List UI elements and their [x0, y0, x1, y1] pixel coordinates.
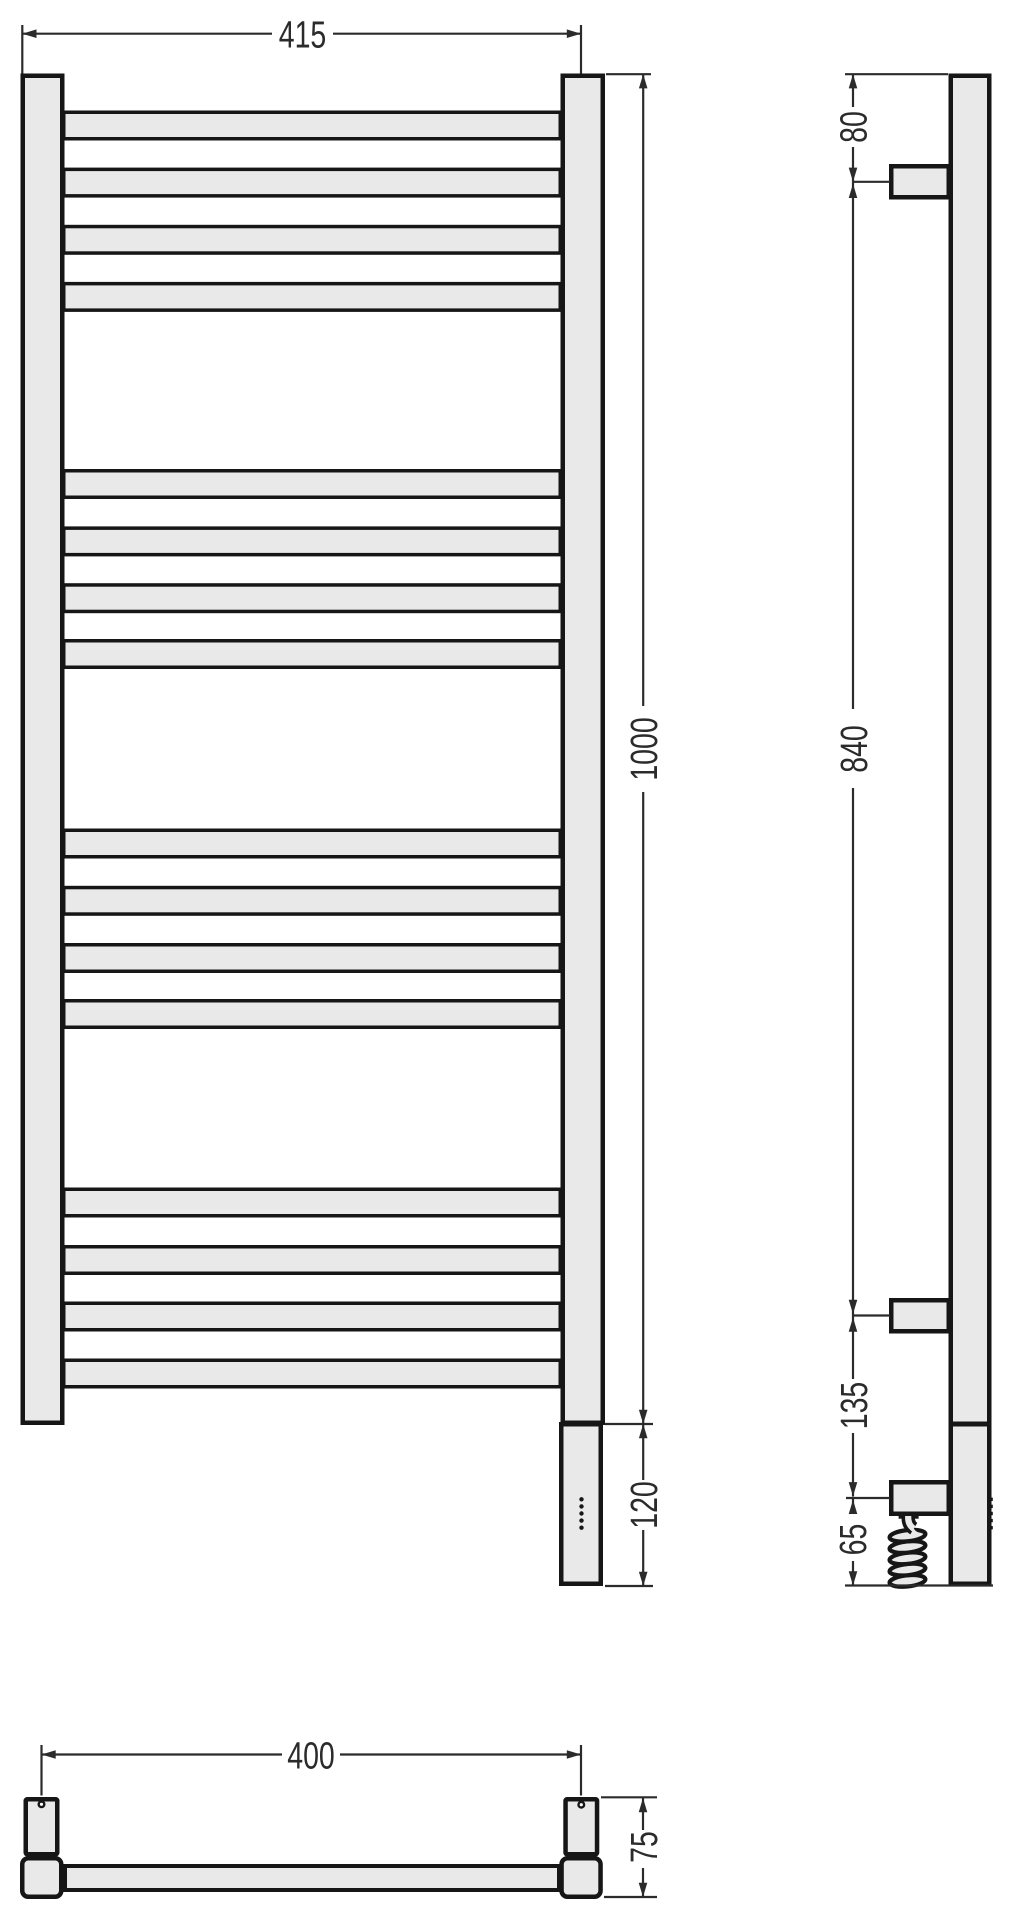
svg-text:135: 135 [834, 1382, 876, 1430]
svg-text:1000: 1000 [624, 717, 666, 780]
svg-text:65: 65 [833, 1524, 875, 1556]
svg-text:120: 120 [624, 1481, 666, 1529]
svg-text:80: 80 [833, 111, 875, 143]
svg-text:840: 840 [834, 725, 876, 773]
svg-text:75: 75 [624, 1831, 666, 1863]
svg-text:400: 400 [287, 1735, 335, 1777]
svg-text:415: 415 [279, 15, 327, 57]
